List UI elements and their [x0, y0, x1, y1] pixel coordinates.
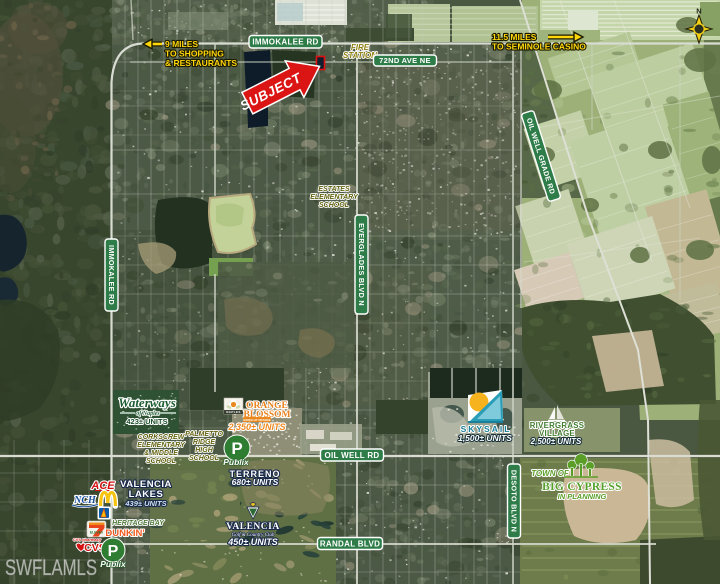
svg-text:RANDAL BLVD: RANDAL BLVD [320, 539, 380, 548]
svg-text:OIL WELL RD: OIL WELL RD [324, 451, 379, 460]
svg-text:TO SHOPPING: TO SHOPPING [165, 49, 224, 59]
svg-text:450± UNITS: 450± UNITS [227, 537, 277, 547]
svg-text:IMMOKALEE RD: IMMOKALEE RD [107, 245, 116, 305]
svg-text:ELEMENTARY: ELEMENTARY [137, 442, 186, 449]
svg-text:DUNKIN': DUNKIN' [105, 528, 144, 539]
svg-text:423± UNITS: 423± UNITS [126, 417, 167, 426]
svg-text:P: P [108, 543, 119, 560]
svg-text:VALENCIA: VALENCIA [226, 522, 279, 532]
svg-text:STATION: STATION [343, 51, 377, 60]
svg-text:IMMOKALEE RD: IMMOKALEE RD [252, 38, 318, 47]
svg-text:RIDGE: RIDGE [193, 439, 216, 446]
svg-text:SCHOOL: SCHOOL [189, 455, 219, 462]
svg-text:HERITAGE BAY: HERITAGE BAY [112, 520, 165, 527]
svg-text:P: P [231, 439, 242, 458]
svg-text:SCHOOL: SCHOOL [319, 202, 349, 209]
svg-text:439± UNITS: 439± UNITS [124, 499, 166, 508]
svg-text:& MIDDLE: & MIDDLE [144, 450, 178, 457]
svg-text:EVERGLADES BLVD N: EVERGLADES BLVD N [357, 223, 366, 306]
svg-text:N: N [696, 7, 701, 16]
svg-text:SCHOOL: SCHOOL [146, 458, 176, 465]
svg-text:TO SEMINOLE CASINO: TO SEMINOLE CASINO [492, 42, 586, 52]
svg-text:HIGH: HIGH [195, 447, 213, 454]
svg-text:Publix: Publix [223, 457, 250, 467]
svg-text:& RESTAURANTS: & RESTAURANTS [165, 58, 237, 68]
svg-text:ELEVEn: ELEVEn [90, 531, 103, 535]
svg-text:NCH: NCH [73, 495, 97, 506]
svg-text:DESOTO BLVD N: DESOTO BLVD N [509, 470, 518, 532]
svg-text:PALMETTO: PALMETTO [185, 431, 223, 438]
svg-text:Publix: Publix [100, 559, 127, 569]
svg-text:680± UNITS: 680± UNITS [232, 477, 279, 487]
svg-text:ESTATES: ESTATES [318, 186, 350, 193]
svg-text:CORKSCREW: CORKSCREW [138, 434, 186, 441]
svg-text:11.5 MILES: 11.5 MILES [492, 32, 537, 42]
svg-text:72ND AVE NE: 72ND AVE NE [379, 56, 431, 65]
svg-text:NAPLES: NAPLES [226, 410, 241, 414]
svg-text:2,500± UNITS: 2,500± UNITS [530, 437, 582, 446]
svg-text:Waterways: Waterways [118, 395, 176, 410]
svg-text:ELEMENTARY: ELEMENTARY [310, 194, 359, 201]
svg-text:1,500± UNITS: 1,500± UNITS [458, 433, 512, 443]
svg-text:9 MILES: 9 MILES [165, 39, 198, 49]
svg-text:IN PLANNING: IN PLANNING [558, 492, 607, 501]
svg-text:SWFLAMLS: SWFLAMLS [5, 555, 97, 580]
svg-text:2,350± UNITS: 2,350± UNITS [228, 422, 286, 432]
